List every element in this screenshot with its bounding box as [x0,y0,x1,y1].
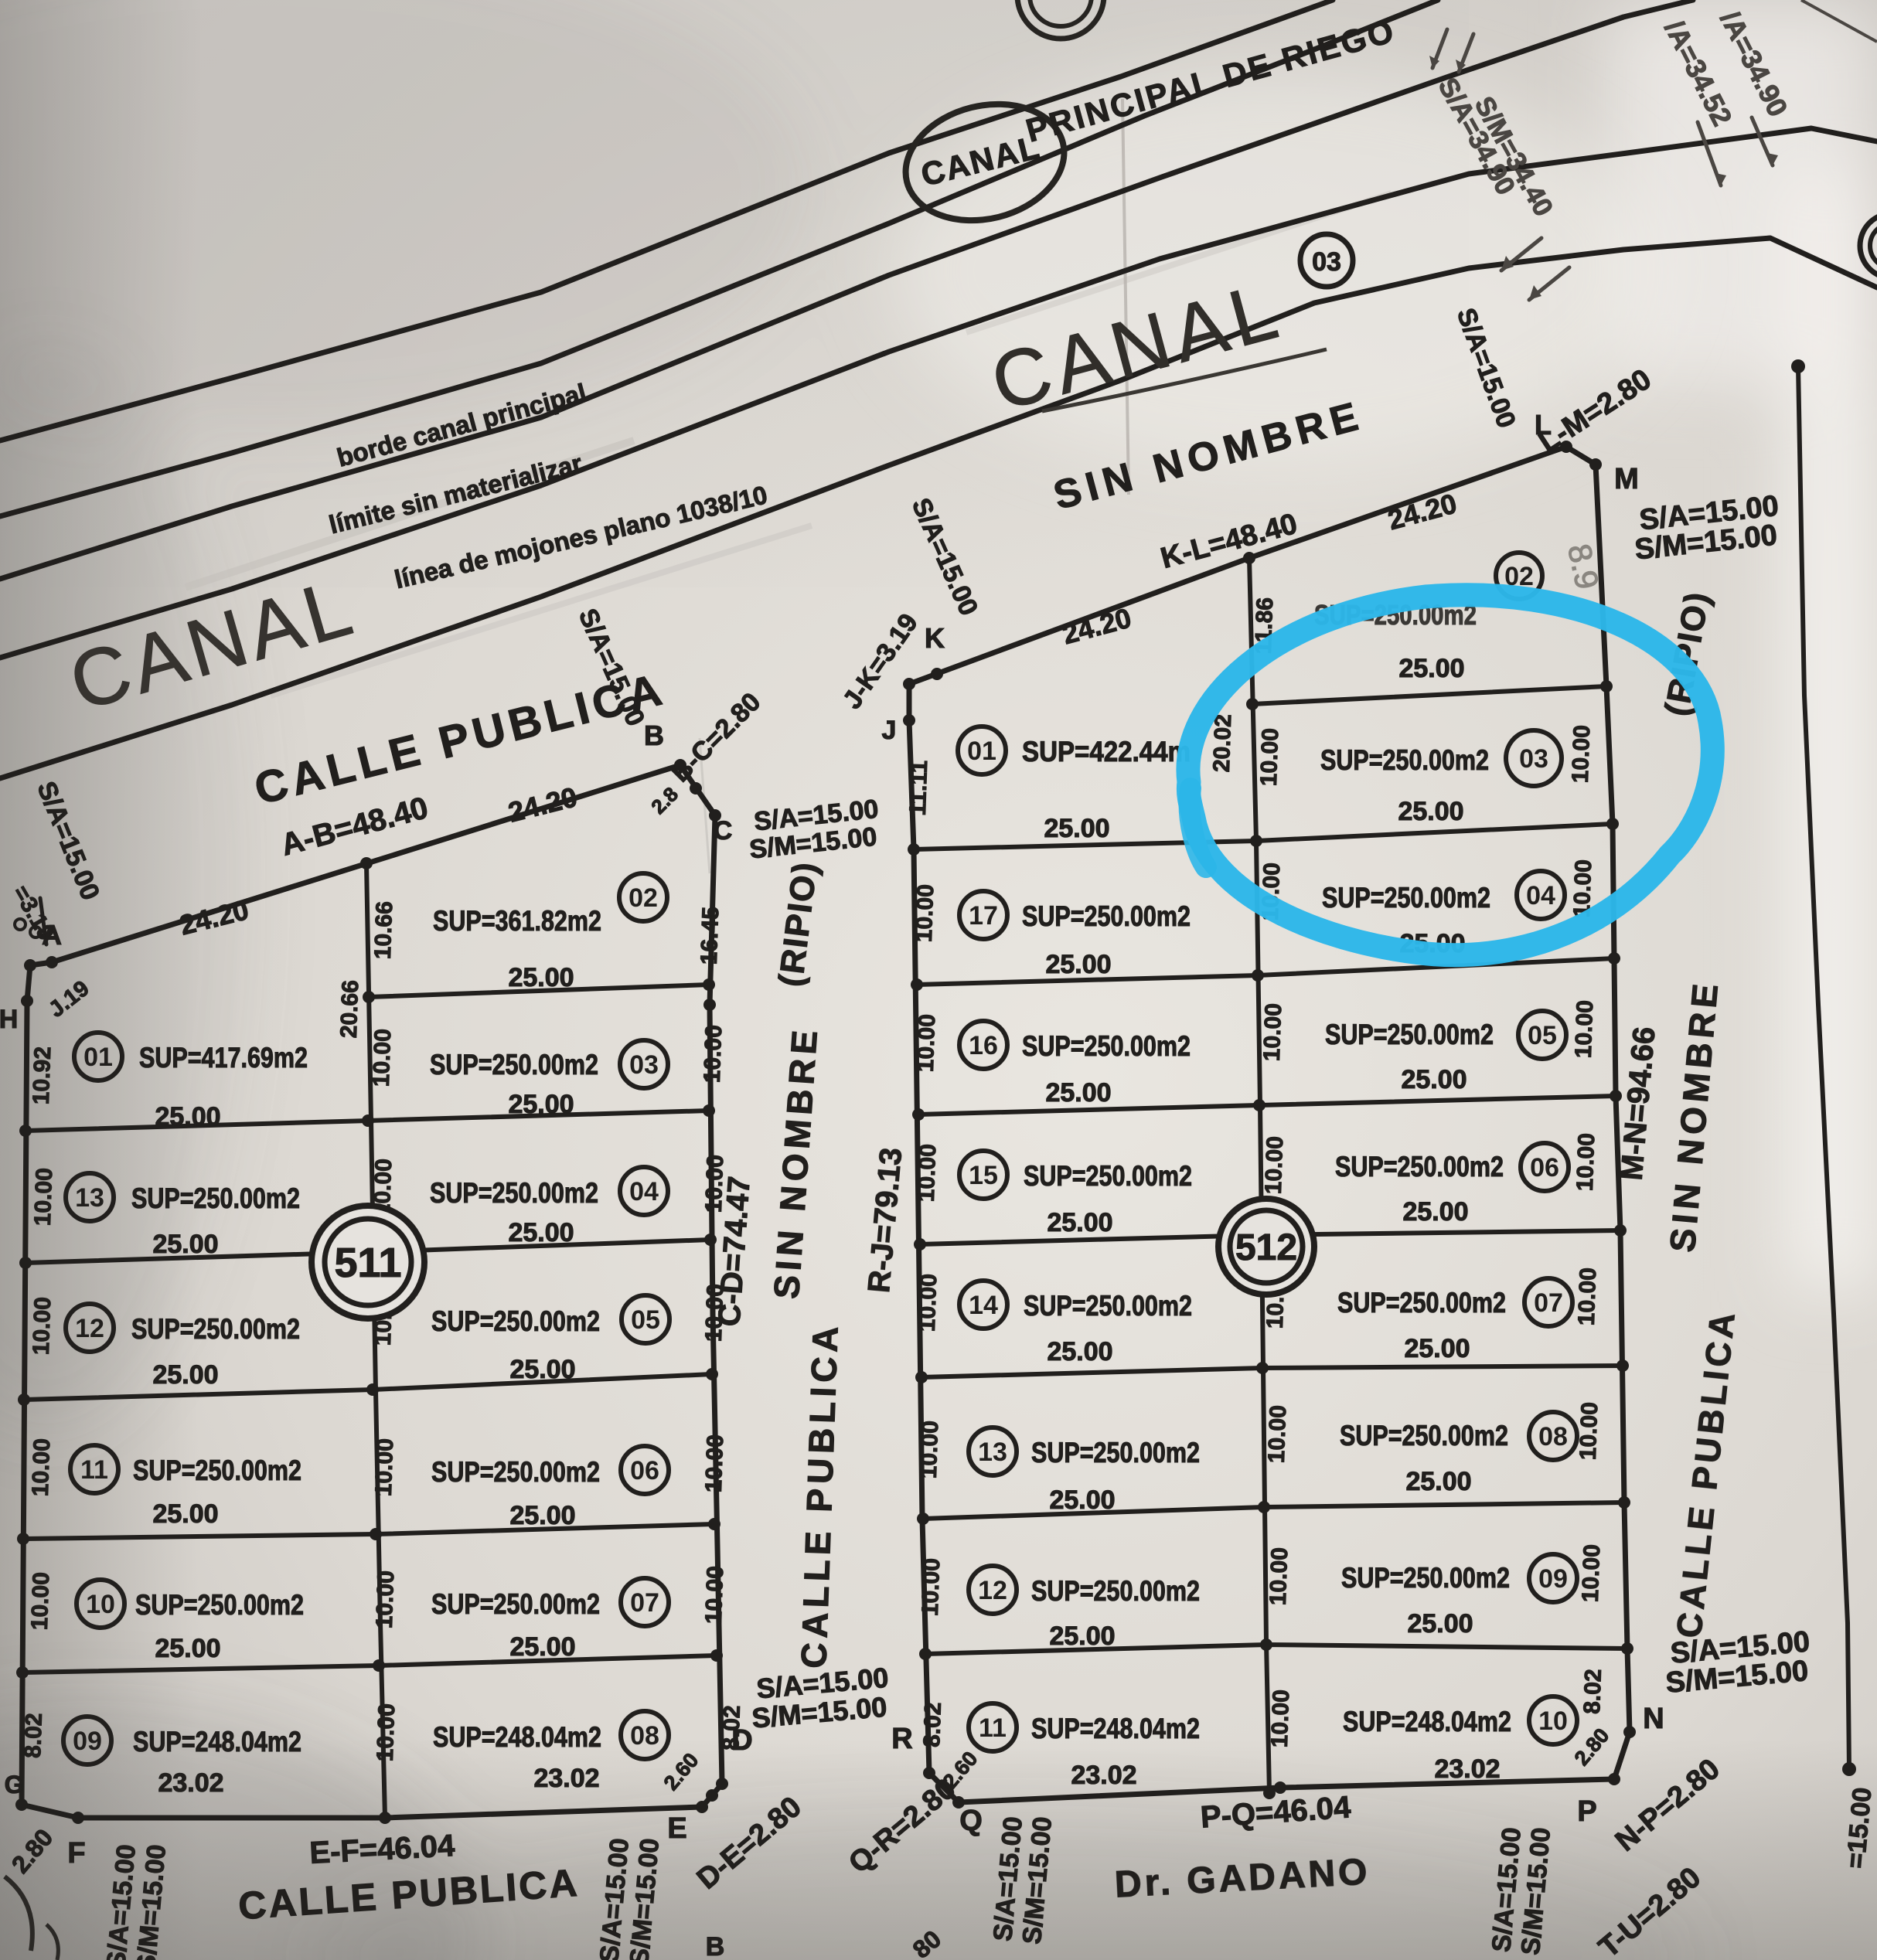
svg-text:P: P [1577,1795,1596,1828]
svg-text:10.00: 10.00 [27,1572,55,1631]
svg-text:04: 04 [629,1177,659,1206]
svg-text:16: 16 [969,1031,998,1060]
svg-text:11: 11 [80,1455,108,1485]
svg-text:N: N [1643,1703,1664,1735]
svg-text:10.00: 10.00 [701,1566,729,1625]
svg-text:08: 08 [630,1721,659,1751]
svg-text:H: H [0,1005,18,1034]
svg-text:10.00: 10.00 [701,1434,729,1493]
svg-text:06: 06 [630,1456,659,1485]
svg-text:10.00: 10.00 [28,1438,56,1497]
svg-text:25.00: 25.00 [155,1102,220,1131]
svg-text:03: 03 [629,1050,659,1080]
svg-text:SUP=417.69m2: SUP=417.69m2 [139,1042,308,1074]
svg-text:10.00: 10.00 [1574,1268,1602,1326]
svg-text:02: 02 [629,883,658,913]
svg-text:SUP=250.00m2: SUP=250.00m2 [431,1456,600,1488]
svg-text:SUP=250.00m2: SUP=250.00m2 [1325,1019,1494,1050]
svg-text:8.02: 8.02 [919,1702,946,1748]
svg-text:10.00: 10.00 [911,884,939,943]
svg-text:01: 01 [83,1043,113,1072]
svg-text:23.02: 23.02 [533,1764,599,1793]
svg-text:SUP=250.00m2: SUP=250.00m2 [1031,1437,1200,1468]
svg-text:14: 14 [969,1291,998,1320]
svg-text:10.00: 10.00 [915,1274,942,1332]
svg-text:SUP=250.00m2: SUP=250.00m2 [1337,1287,1506,1319]
svg-text:10.00: 10.00 [1266,1547,1293,1606]
svg-text:10.92: 10.92 [29,1046,56,1105]
svg-text:8.02: 8.02 [1579,1669,1606,1715]
svg-text:17: 17 [969,901,998,931]
svg-text:J: J [882,716,897,745]
svg-text:10.00: 10.00 [1568,725,1596,784]
svg-text:10.00: 10.00 [1256,728,1284,787]
svg-text:10.00: 10.00 [1572,1133,1600,1192]
svg-text:10.00: 10.00 [1578,1544,1606,1603]
svg-text:23.02: 23.02 [1071,1761,1136,1790]
svg-text:12: 12 [978,1576,1007,1605]
svg-text:05: 05 [631,1305,660,1335]
svg-text:03: 03 [1312,247,1341,277]
svg-text:25.00: 25.00 [1398,797,1463,826]
svg-text:SUP=250.00m2: SUP=250.00m2 [131,1182,300,1214]
svg-text:10.00: 10.00 [914,1144,942,1203]
svg-text:25.00: 25.00 [1404,1334,1470,1363]
svg-text:05: 05 [1528,1021,1557,1050]
svg-text:09: 09 [1538,1564,1568,1594]
svg-text:SUP=248.04m2: SUP=248.04m2 [1343,1706,1511,1737]
svg-text:25.00: 25.00 [1398,654,1464,683]
svg-text:SUP=250.00m2: SUP=250.00m2 [431,1305,600,1337]
svg-text:SUP=250.00m2: SUP=250.00m2 [1320,744,1489,776]
svg-text:25.00: 25.00 [508,1218,574,1247]
svg-text:SUP=250.00m2: SUP=250.00m2 [133,1455,301,1486]
svg-text:25.00: 25.00 [1047,1208,1112,1237]
svg-text:10.00: 10.00 [700,1025,727,1084]
svg-text:E: E [667,1812,686,1845]
svg-text:10.00: 10.00 [1267,1689,1295,1748]
svg-text:10.00: 10.00 [916,1421,944,1479]
svg-text:13: 13 [75,1183,104,1213]
svg-text:03: 03 [1519,744,1548,774]
svg-text:25.00: 25.00 [155,1634,220,1663]
svg-text:25.00: 25.00 [1045,950,1111,979]
svg-text:07: 07 [630,1588,659,1618]
svg-text:8.02: 8.02 [20,1713,47,1759]
svg-text:25.00: 25.00 [152,1230,218,1259]
svg-text:15: 15 [969,1161,998,1190]
svg-text:25.00: 25.00 [1402,1197,1468,1227]
svg-text:10.00: 10.00 [918,1558,945,1617]
svg-text:SUP=250.00m2: SUP=250.00m2 [430,1177,598,1209]
svg-text:10.00: 10.00 [1571,1000,1599,1059]
svg-text:10: 10 [86,1590,115,1619]
svg-text:25.00: 25.00 [509,1501,575,1530]
svg-text:10.00: 10.00 [29,1297,56,1356]
svg-text:B: B [706,1932,725,1960]
svg-text:25.00: 25.00 [1407,1609,1473,1638]
svg-text:10.00: 10.00 [913,1014,941,1073]
svg-text:13: 13 [978,1438,1007,1467]
svg-text:10.00: 10.00 [371,1438,399,1497]
svg-text:10.00: 10.00 [1261,1136,1289,1195]
svg-text:10.66: 10.66 [370,901,398,960]
svg-text:A: A [42,919,62,951]
svg-text:12: 12 [75,1314,104,1343]
svg-text:SUP=250.00m2: SUP=250.00m2 [1024,1160,1192,1192]
svg-text:25.00: 25.00 [509,1632,575,1662]
svg-text:SUP=250.00m2: SUP=250.00m2 [1031,1575,1200,1607]
svg-text:10: 10 [1538,1706,1568,1736]
svg-text:10.00: 10.00 [372,1570,400,1629]
svg-text:09: 09 [73,1727,102,1756]
svg-text:04: 04 [1526,881,1555,910]
svg-text:25.00: 25.00 [1045,1078,1111,1108]
svg-text:25.00: 25.00 [152,1360,218,1390]
svg-text:25.00: 25.00 [508,963,574,992]
svg-text:SUP=250.00m2: SUP=250.00m2 [131,1313,300,1345]
svg-text:SUP=250.00m2: SUP=250.00m2 [135,1589,304,1621]
svg-text:511: 511 [334,1240,401,1286]
svg-text:512: 512 [1235,1227,1297,1268]
svg-text:25.00: 25.00 [509,1355,575,1384]
svg-text:11: 11 [979,1713,1007,1743]
svg-text:10.00: 10.00 [1264,1405,1292,1464]
svg-text:10.00: 10.00 [369,1029,397,1087]
svg-text:25.00: 25.00 [508,1090,574,1119]
svg-text:Q: Q [959,1805,983,1837]
svg-text:SUP=250.00m2: SUP=250.00m2 [1022,1030,1191,1062]
svg-text:23.02: 23.02 [158,1768,223,1798]
svg-text:01: 01 [967,737,996,766]
svg-text:SUP=250.00m2: SUP=250.00m2 [1340,1420,1508,1451]
svg-text:M: M [1614,463,1639,495]
svg-text:D: D [731,1724,752,1757]
svg-text:K: K [925,622,945,654]
svg-text:10.00: 10.00 [373,1703,400,1762]
svg-text:25.00: 25.00 [1405,1467,1471,1496]
svg-text:20.66: 20.66 [336,980,364,1039]
svg-text:L: L [1535,409,1552,441]
svg-text:07: 07 [1534,1288,1563,1318]
svg-text:SUP=361.82m2: SUP=361.82m2 [433,905,601,937]
svg-text:SUP=250.00m2: SUP=250.00m2 [430,1049,598,1080]
svg-text:25.00: 25.00 [1044,814,1109,843]
svg-text:10.00: 10.00 [30,1168,58,1227]
svg-text:SUP=248.04m2: SUP=248.04m2 [1031,1713,1200,1744]
svg-text:10.00: 10.00 [1259,1003,1287,1062]
svg-text:SUP=250.00m2: SUP=250.00m2 [1335,1151,1504,1182]
svg-text:R: R [891,1723,912,1755]
svg-text:25.00: 25.00 [1049,1485,1115,1515]
svg-text:B: B [644,720,664,751]
svg-text:25.00: 25.00 [1401,1065,1467,1094]
svg-text:F: F [67,1837,85,1870]
svg-text:SUP=250.00m2: SUP=250.00m2 [1341,1562,1510,1594]
svg-text:SUP=250.00m2: SUP=250.00m2 [1322,882,1490,914]
svg-text:08: 08 [1538,1422,1568,1451]
svg-text:25.00: 25.00 [1049,1621,1115,1651]
svg-text:SUP=250.00m2: SUP=250.00m2 [1024,1290,1192,1322]
svg-text:23.02: 23.02 [1434,1754,1500,1784]
svg-text:G: G [5,1771,24,1798]
svg-text:10.00: 10.00 [1576,1402,1603,1461]
svg-text:11.11: 11.11 [905,760,932,816]
svg-text:SUP=422.44m: SUP=422.44m [1022,736,1191,767]
svg-text:25.00: 25.00 [1047,1337,1112,1366]
svg-text:SUP=250.00m2: SUP=250.00m2 [1022,900,1191,932]
svg-text:SUP=248.04m2: SUP=248.04m2 [133,1726,301,1758]
svg-text:16.45: 16.45 [697,907,724,965]
svg-text:SUP=248.04m2: SUP=248.04m2 [433,1721,601,1753]
svg-text:25.00: 25.00 [152,1499,218,1529]
svg-text:SUP=250.00m2: SUP=250.00m2 [431,1588,600,1620]
svg-text:06: 06 [1530,1153,1559,1182]
